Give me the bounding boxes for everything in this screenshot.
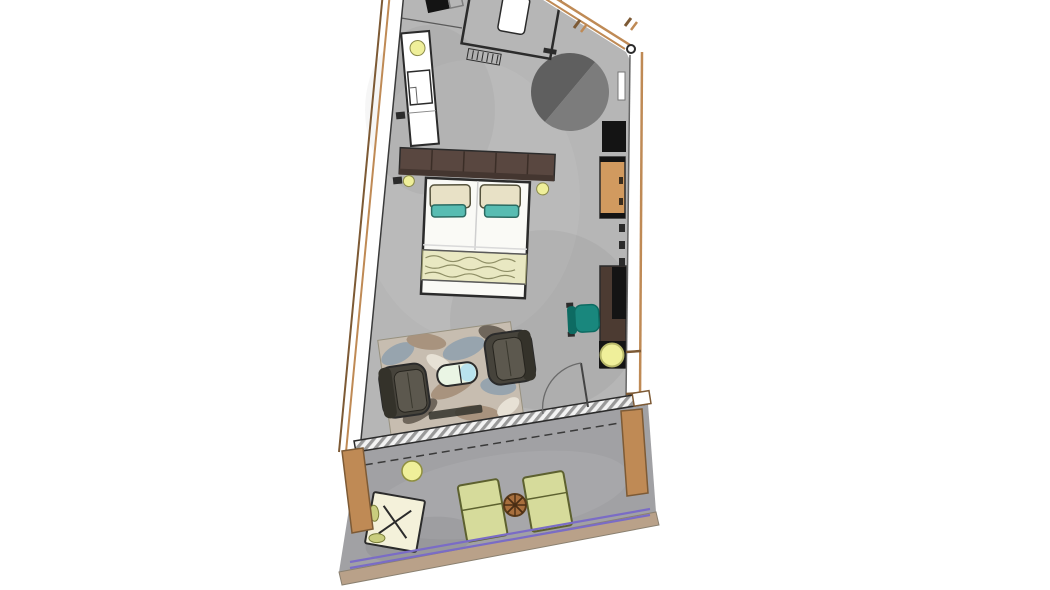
- wall-outlet: [619, 241, 625, 249]
- sun-lounger-left: [457, 479, 507, 542]
- pane-divider: [618, 72, 625, 100]
- wardrobe-top-bar: [600, 157, 625, 162]
- mullion-tick: [626, 351, 641, 352]
- wardrobe-handle: [619, 177, 623, 184]
- wall-outlet: [619, 224, 625, 232]
- throw-blanket: [422, 250, 527, 285]
- wall-sconce: [396, 111, 406, 119]
- floor-plan-page: [0, 0, 1050, 590]
- desk-black-section: [612, 267, 626, 319]
- shower-tray: [497, 0, 530, 35]
- wardrobe-body: [600, 157, 625, 218]
- lounger: [523, 471, 573, 532]
- door-jamb: [632, 391, 651, 406]
- bedside-lamp-right: [536, 183, 549, 196]
- floor-plan: [0, 0, 1050, 590]
- bedside-lamp-left: [403, 175, 414, 186]
- cushion-roll: [369, 534, 385, 543]
- accent-pillow-left: [432, 205, 466, 217]
- foot-throw: [422, 250, 527, 285]
- wall-outlet: [619, 258, 625, 266]
- wardrobe: [600, 157, 625, 218]
- planter: [402, 461, 422, 481]
- console: [602, 121, 626, 152]
- desk-chair: [566, 301, 600, 337]
- accent-pillow-right: [485, 205, 519, 217]
- balcony-side-table: [504, 494, 526, 516]
- floor-lamp: [601, 344, 624, 367]
- armchair-right: [483, 329, 537, 386]
- wall-sconce: [393, 176, 403, 184]
- chair-seat: [574, 304, 599, 332]
- wall-corner-cap: [627, 45, 635, 53]
- armchair-left: [378, 362, 432, 419]
- wardrobe-handle: [619, 198, 623, 205]
- sun-lounger-right: [523, 471, 573, 532]
- wardrobe-bottom-bar: [600, 213, 625, 218]
